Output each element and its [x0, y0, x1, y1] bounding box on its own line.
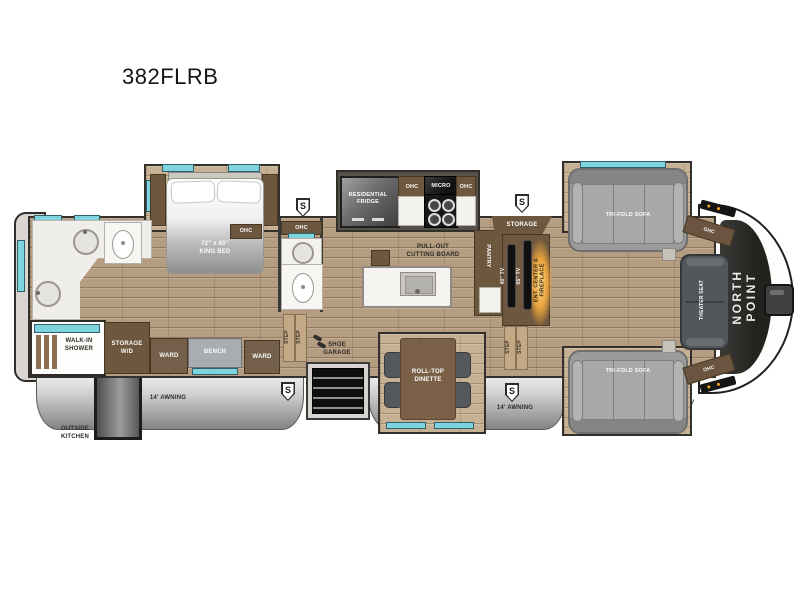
residential-fridge: RESIDENTIAL FRIDGE: [340, 176, 400, 228]
rear-window: [17, 240, 25, 292]
tv-40: [507, 244, 516, 308]
burner: [428, 213, 441, 226]
walk-in-shower-label: WALK-IN SHOWER: [56, 338, 102, 353]
toilet-flush: [301, 285, 305, 289]
speaker-marker-letter: S: [296, 198, 310, 214]
pantry-bin: [479, 287, 501, 313]
window-strip: [434, 422, 474, 429]
microwave: MICRO: [424, 176, 458, 196]
awning-right-label: 14' AWNING: [475, 405, 555, 413]
hitch-pin: [764, 284, 794, 316]
sofa-back: [570, 170, 686, 184]
bedroom-ohc: OHC: [230, 224, 262, 239]
kitchen-counter: [398, 196, 426, 226]
speaker-marker: S: [515, 194, 529, 213]
bedroom-ohc-label: OHC: [231, 228, 261, 235]
speaker-marker-letter: S: [505, 383, 519, 399]
side-table: [662, 340, 676, 353]
midbath-vanity: [281, 238, 322, 266]
theater-seat-label: THEATER SEAT: [700, 280, 706, 320]
tri-fold-sofa-bottom-label: TRI-FOLD SOFA: [578, 368, 678, 375]
faucet: [83, 230, 87, 234]
brand-name: NORTH POINT: [731, 269, 759, 324]
step-label: STEP: [506, 340, 512, 354]
residential-fridge-label: RESIDENTIAL FRIDGE: [343, 192, 393, 206]
island-sink: [400, 272, 436, 296]
cutting-board-label: PULL-OUT CUTTING BOARD: [394, 244, 472, 259]
floorplan-canvas: 382FLRB 14' AWNING 14' AWNING OUTSIDE KI…: [0, 0, 800, 600]
tv-65-label: 65" TV: [517, 268, 523, 285]
speaker-marker-letter: S: [515, 194, 529, 210]
window-strip: [192, 368, 238, 375]
window-strip: [228, 164, 260, 172]
step-label: STEP: [518, 340, 524, 354]
awning-left-label: 14' AWNING: [133, 395, 203, 403]
shoe-garage-label: SHOE GARAGE: [314, 342, 360, 357]
nightstand-left: [150, 174, 166, 226]
king-bed-label: 72" x 80" KING BED: [167, 241, 263, 256]
kitchen-ohc-left: OHC: [398, 176, 426, 198]
step-label: STEP: [297, 330, 303, 344]
ward-left: WARD: [150, 338, 188, 374]
kitchen-ohc-right-label: OHC: [457, 184, 475, 191]
ward-right: WARD: [244, 340, 280, 374]
entry-steps: [306, 362, 370, 420]
toilet: [112, 230, 134, 259]
speaker-marker-letter: S: [281, 382, 295, 398]
dinette-table: ROLL-TOP DINETTE: [400, 338, 456, 420]
marker-light: [717, 207, 721, 211]
tv-40-label: 40" TV: [501, 268, 507, 285]
fridge-handle: [352, 218, 364, 221]
ward-left-label: WARD: [151, 353, 187, 361]
ent-center-label: ENT. CENTER & FIREPLACE: [534, 258, 547, 302]
walk-in-shower: WALK-IN SHOWER: [30, 320, 106, 376]
marker-light: [707, 385, 711, 389]
storage-wd-label: STORAGE W/D: [107, 341, 147, 356]
bath-sink: [35, 281, 61, 307]
kitchen-ohc-left-label: OHC: [399, 184, 425, 191]
theater-armrest: [686, 338, 724, 346]
storage-cabinet: STORAGE: [492, 216, 552, 234]
kitchen-ohc-right: OHC: [456, 176, 476, 198]
faucet: [415, 289, 420, 294]
kitchen-counter: [456, 196, 476, 226]
tri-fold-sofa-bottom: TRI-FOLD SOFA: [568, 350, 688, 434]
tv-65: [523, 240, 532, 310]
tri-fold-sofa-top: TRI-FOLD SOFA: [568, 168, 688, 252]
pillow: [171, 180, 216, 204]
pillow: [217, 180, 262, 204]
island-end-cabinet: [371, 250, 390, 266]
entry-steps-treads: [312, 368, 364, 414]
midbath-ohc-label: OHC: [282, 225, 321, 232]
hitch-pin-highlight: [770, 290, 784, 295]
burner: [442, 213, 455, 226]
sofa-back: [570, 418, 686, 432]
theater-armrest: [686, 258, 724, 266]
storage-wd-cabinet: STORAGE W/D: [104, 322, 150, 374]
dinette-label: ROLL-TOP DINETTE: [403, 369, 453, 384]
tri-fold-sofa-top-label: TRI-FOLD SOFA: [578, 212, 678, 219]
bench: BENCH: [188, 338, 242, 368]
burner: [442, 199, 455, 212]
microwave-label: MICRO: [425, 183, 457, 190]
bath-sink: [292, 242, 314, 264]
marker-light: [707, 204, 711, 208]
pantry-label: PANTRY: [485, 244, 491, 267]
step-label: STEP: [285, 330, 291, 344]
shower-door-stripe: [36, 335, 41, 369]
side-table: [662, 248, 676, 261]
floorplan-title: 382FLRB: [122, 66, 218, 88]
awning-left: 14' AWNING: [36, 372, 304, 430]
outside-kitchen-label: OUTSIDE KITCHEN: [44, 426, 106, 441]
midbath-toilet-area: [281, 264, 323, 310]
nightstand-right: [262, 174, 278, 226]
cooktop: [424, 194, 458, 228]
shower-door-stripe: [44, 335, 49, 369]
fridge-handle: [372, 218, 384, 221]
window-strip: [386, 422, 426, 429]
bath-sink: [73, 229, 99, 255]
bench-label: BENCH: [193, 349, 237, 357]
toilet-flush: [121, 241, 125, 245]
window-strip: [162, 164, 194, 172]
window-strip: [580, 161, 666, 168]
shower-window: [34, 324, 100, 333]
marker-light: [717, 383, 721, 387]
toilet: [292, 273, 314, 303]
speaker-marker: S: [296, 198, 310, 217]
faucet: [36, 291, 40, 295]
ward-right-label: WARD: [245, 354, 279, 362]
kitchen-island: [362, 266, 452, 308]
burner: [428, 199, 441, 212]
storage-label: STORAGE: [492, 222, 552, 230]
